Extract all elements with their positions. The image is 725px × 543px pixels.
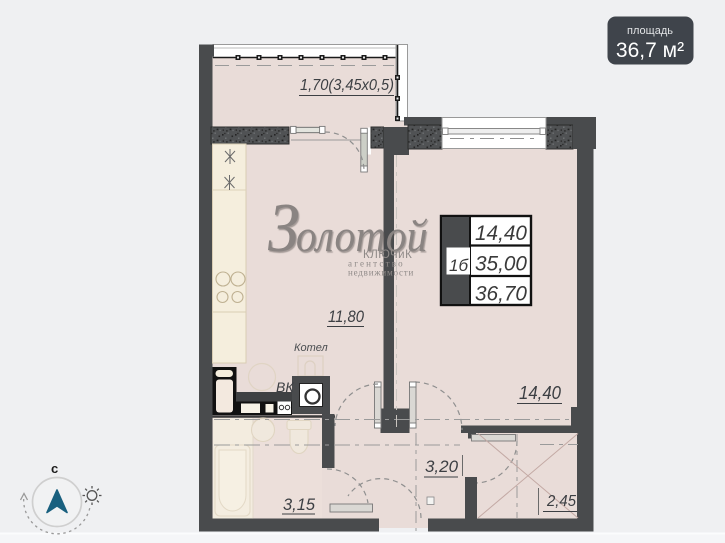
svg-text:36,7 м²: 36,7 м² bbox=[616, 39, 684, 62]
svg-text:14,40: 14,40 bbox=[475, 222, 527, 245]
svg-text:с: с bbox=[51, 461, 58, 476]
svg-text:11,80: 11,80 bbox=[328, 307, 364, 326]
svg-text:Котел: Котел bbox=[294, 342, 328, 354]
svg-text:ВК: ВК bbox=[276, 379, 294, 395]
svg-text:недвижимости: недвижимости bbox=[348, 268, 414, 278]
svg-text:14,40: 14,40 bbox=[519, 383, 561, 403]
svg-text:3,15: 3,15 bbox=[283, 495, 316, 514]
svg-text:3,20: 3,20 bbox=[425, 457, 459, 476]
svg-text:2,45: 2,45 bbox=[546, 493, 576, 510]
svg-text:35,00: 35,00 bbox=[475, 253, 527, 276]
svg-text:1,70(3,45x0,5): 1,70(3,45x0,5) bbox=[300, 77, 394, 94]
svg-text:площадь: площадь bbox=[627, 25, 673, 37]
svg-text:1б: 1б bbox=[449, 256, 469, 275]
svg-text:36,70: 36,70 bbox=[475, 283, 527, 306]
